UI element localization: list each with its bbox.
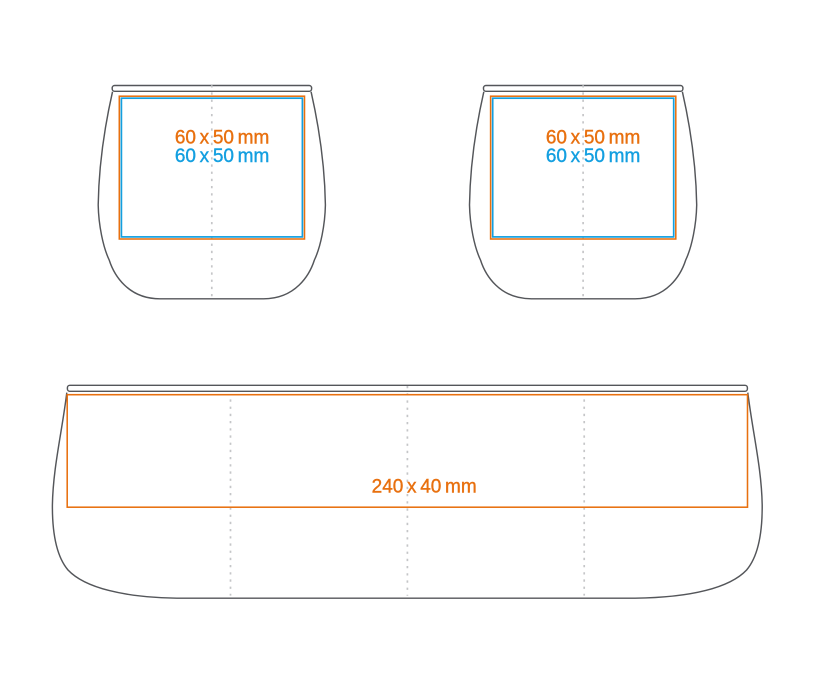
svg-text:240 x 40 mm: 240 x 40 mm (372, 476, 477, 497)
svg-text:60 x 50 mm: 60 x 50 mm (546, 146, 640, 167)
svg-text:60 x 50 mm: 60 x 50 mm (175, 146, 269, 167)
